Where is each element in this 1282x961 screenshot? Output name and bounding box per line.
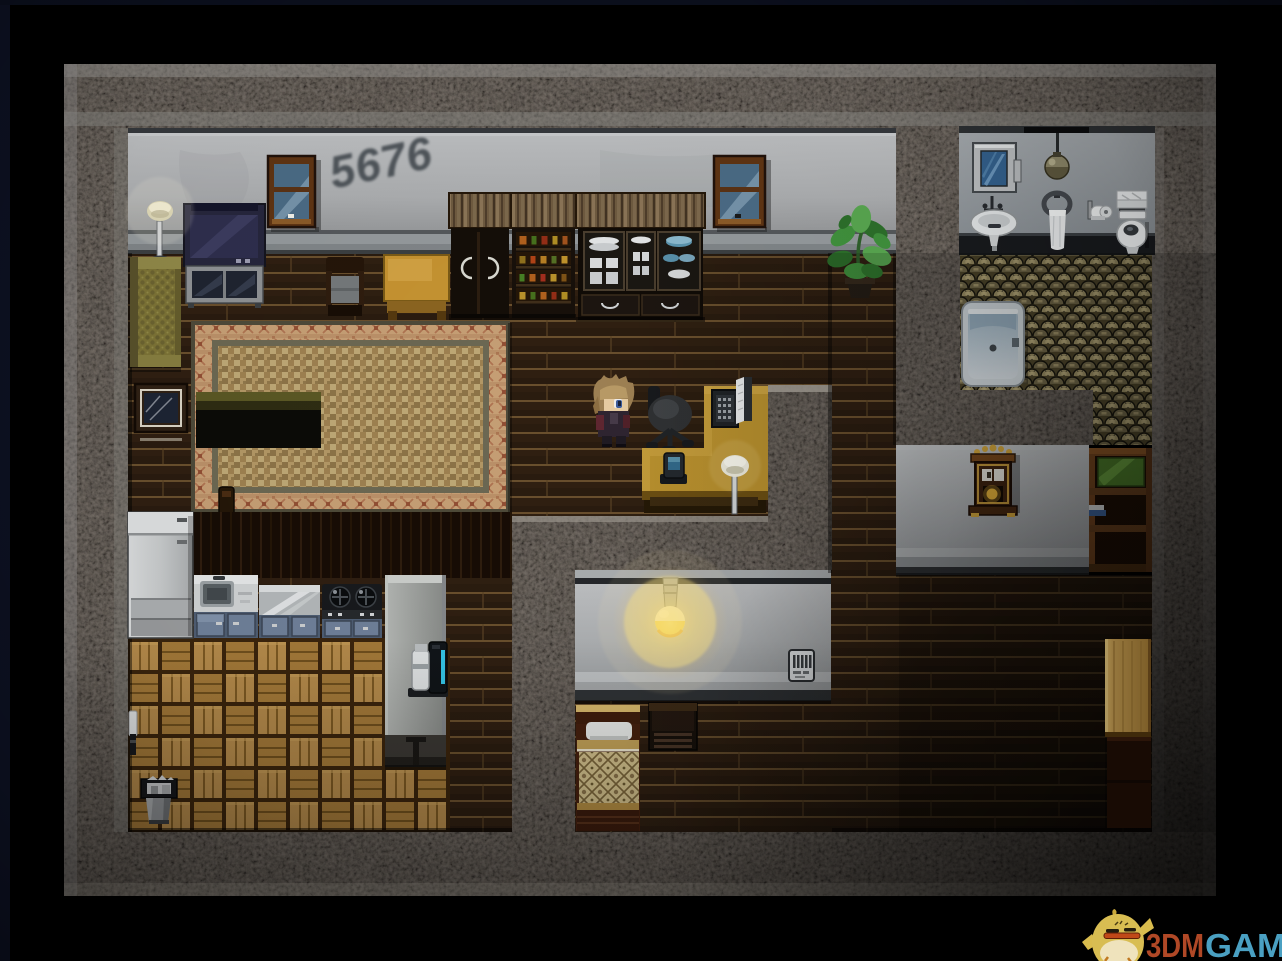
svg-text:3DM: 3DM (1146, 927, 1204, 961)
svg-text:GAME: GAME (1205, 927, 1282, 961)
